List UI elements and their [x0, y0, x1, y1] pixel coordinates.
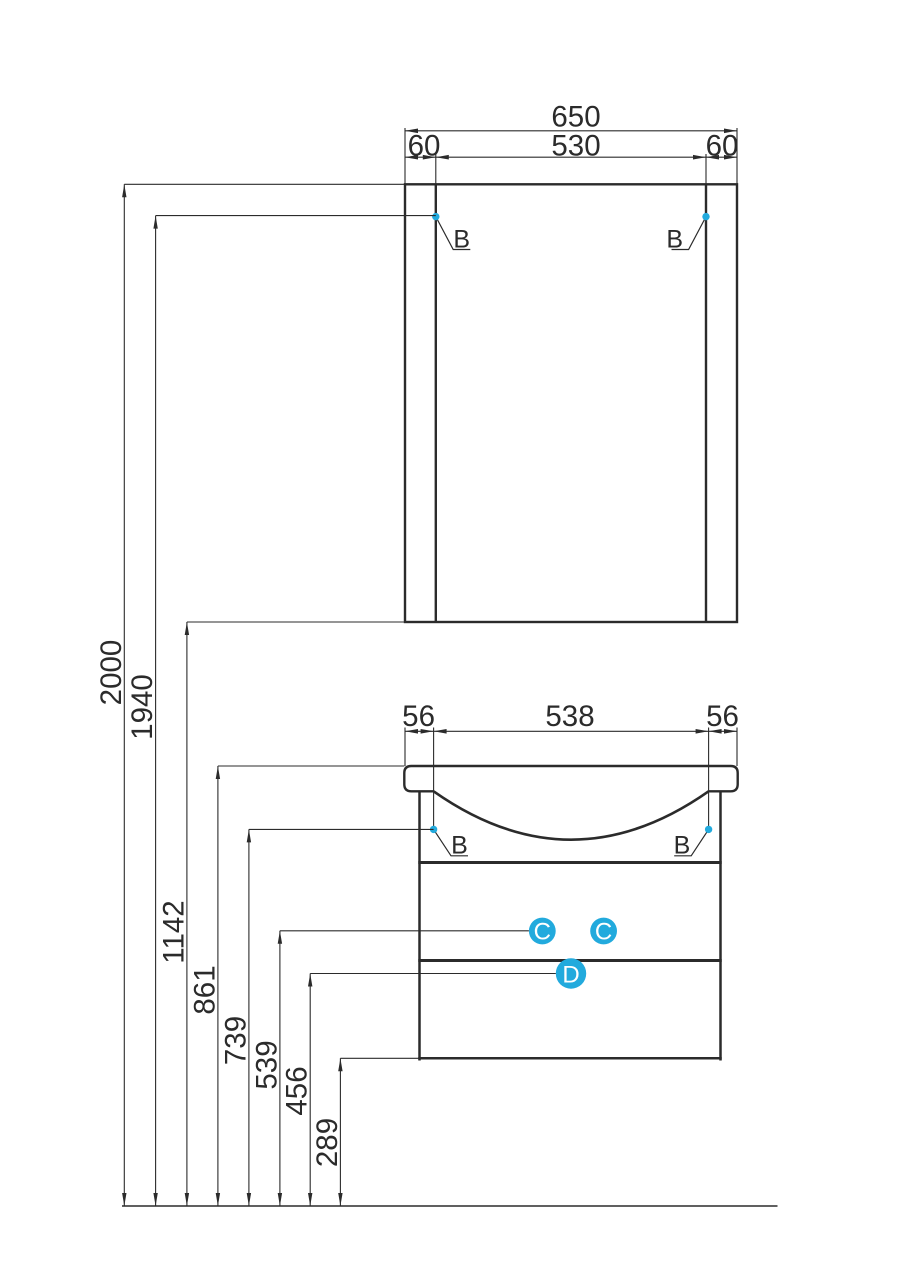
svg-text:456: 456: [281, 1066, 314, 1115]
svg-text:C: C: [595, 919, 612, 946]
svg-text:C: C: [534, 919, 551, 946]
svg-text:56: 56: [706, 700, 739, 733]
svg-text:B: B: [666, 226, 683, 254]
svg-text:56: 56: [402, 700, 435, 733]
svg-text:289: 289: [311, 1118, 344, 1167]
svg-text:2000: 2000: [95, 640, 128, 706]
svg-text:B: B: [674, 832, 691, 860]
svg-text:530: 530: [551, 129, 600, 162]
svg-text:60: 60: [408, 129, 441, 162]
svg-text:739: 739: [219, 1016, 252, 1065]
svg-text:538: 538: [545, 700, 594, 733]
svg-text:B: B: [451, 832, 468, 860]
svg-text:539: 539: [250, 1040, 283, 1089]
svg-text:1940: 1940: [126, 674, 159, 740]
svg-text:D: D: [562, 962, 579, 989]
svg-text:B: B: [453, 226, 470, 254]
svg-text:1142: 1142: [157, 900, 190, 963]
svg-text:60: 60: [706, 129, 739, 162]
svg-text:861: 861: [188, 965, 221, 1014]
